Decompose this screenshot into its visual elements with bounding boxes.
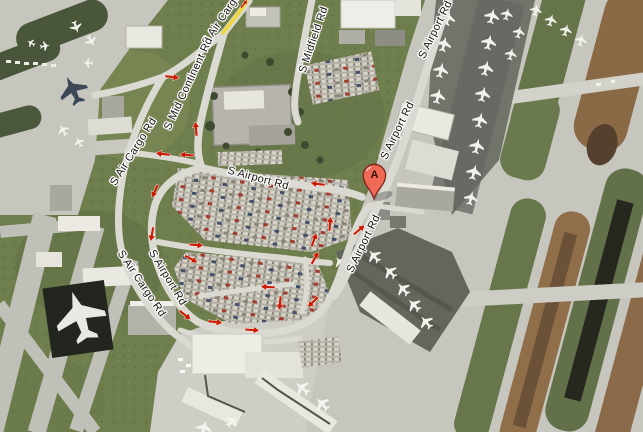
map-canvas[interactable]: S Air Cargo Rd S Mid Continent Rd S Midf… — [0, 0, 643, 432]
satellite-imagery[interactable] — [0, 0, 643, 432]
marker-letter: A — [366, 170, 383, 181]
